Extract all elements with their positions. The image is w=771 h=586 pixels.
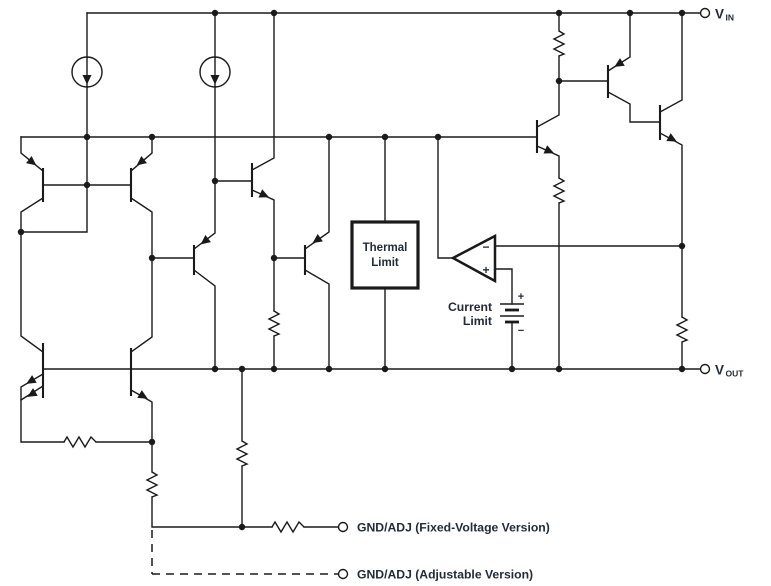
transistor-npn-feedback xyxy=(131,348,150,403)
junction-dot xyxy=(326,366,332,372)
junction-dot xyxy=(556,78,562,84)
gnd-fixed-wire xyxy=(152,497,272,527)
junction-dot xyxy=(271,10,277,16)
gnd-fixed-terminal: GND/ADJ (Fixed-Voltage Version) xyxy=(339,521,550,535)
terminal-circle xyxy=(339,570,348,579)
q6-collector-wire xyxy=(305,270,329,369)
q2-emitter-wire xyxy=(131,137,152,171)
vin-label-subscript: IN xyxy=(726,13,735,23)
junction-dot xyxy=(149,255,155,261)
junction-dot xyxy=(271,255,277,261)
resistor-feedback xyxy=(64,437,96,447)
q1-collector-wire xyxy=(21,198,43,352)
junction-dot xyxy=(18,229,24,235)
current-limit-label-line1: Current xyxy=(448,300,492,314)
junction-dot xyxy=(271,366,277,372)
emitter-arrow xyxy=(666,133,679,145)
transistor-pnp-mirror-right xyxy=(131,156,147,202)
q8-collector-wire xyxy=(660,13,682,112)
resistor-divider-lower xyxy=(147,472,157,497)
junction-dot xyxy=(212,366,218,372)
junction-dot xyxy=(556,10,562,16)
resistor-q4-emitter xyxy=(554,178,564,203)
junction-dot xyxy=(239,524,245,530)
vin-label: V xyxy=(715,7,724,22)
q3-emitter-wire xyxy=(252,190,274,311)
resistor-gnd-series xyxy=(272,522,304,532)
gnd-adjustable-dashed-wire xyxy=(152,530,338,574)
junction-dot xyxy=(212,178,218,184)
terminal-circle xyxy=(701,365,710,374)
schematic-figure: Thermal Limit − + + − Current Limit xyxy=(0,0,771,586)
transistor-pnp-left-follower xyxy=(194,235,211,275)
current-limit-comparator: − + xyxy=(453,236,495,281)
current-limit-label-line2: Limit xyxy=(463,314,492,328)
junction-dot xyxy=(509,366,515,372)
thermal-limit-label-line1: Thermal xyxy=(363,242,408,254)
junction-dot xyxy=(556,366,562,372)
emitter-arrow-1 xyxy=(24,375,37,388)
resistor-driver-base xyxy=(554,31,564,56)
comparator-inverting-label: − xyxy=(482,240,489,254)
junction-dot xyxy=(627,10,633,16)
regulator-internal-schematic: Thermal Limit − + + − Current Limit xyxy=(0,0,771,586)
junction-dot xyxy=(149,439,155,445)
terminal-circle xyxy=(339,523,348,532)
junction-dot xyxy=(239,366,245,372)
current-source1-branch xyxy=(21,13,87,232)
comparator-output-wire xyxy=(438,137,453,258)
q3-collector-wire xyxy=(252,13,274,170)
junction-dot xyxy=(679,366,685,372)
battery-positive-label: + xyxy=(518,291,524,303)
q7-collector-wire xyxy=(608,92,660,122)
current-source-arrow-down xyxy=(211,75,220,85)
junction-dot xyxy=(382,366,388,372)
current-source-arrow-down xyxy=(83,75,92,85)
junction-dot xyxy=(382,134,388,140)
gnd-adjustable-label: GND/ADJ (Adjustable Version) xyxy=(357,568,533,582)
comparator-noninverting-label: + xyxy=(482,263,489,277)
q4-collector-wire-lower xyxy=(537,56,559,127)
transistor-pnp-right-follower xyxy=(305,234,323,275)
transistor-npn-dual-emitter xyxy=(24,343,43,401)
battery-negative-label: − xyxy=(518,325,524,337)
junction-dot xyxy=(326,134,332,140)
junction-dot xyxy=(84,182,90,188)
terminal-circle xyxy=(701,9,710,18)
vin-terminal: V IN xyxy=(701,7,735,23)
emitter-arrow xyxy=(612,58,625,71)
resistor-divider-upper xyxy=(237,441,247,466)
q6-emitter-wire xyxy=(305,137,329,249)
q8-emitter-wire xyxy=(660,133,682,317)
q1-emitter-wire xyxy=(21,137,43,171)
thermal-limit-label-line2: Limit xyxy=(371,257,399,269)
junction-dot xyxy=(679,10,685,16)
resistor-q3-emitter xyxy=(269,311,279,336)
junction-dot xyxy=(212,10,218,16)
emitter-arrow xyxy=(137,390,150,403)
thermal-limit-box xyxy=(352,222,418,288)
junction-dot xyxy=(84,134,90,140)
current-source2-branch xyxy=(194,13,215,249)
gnd-fixed-label: GND/ADJ (Fixed-Voltage Version) xyxy=(357,521,550,535)
gnd-adjustable-terminal: GND/ADJ (Adjustable Version) xyxy=(339,568,534,582)
vout-label-subscript: OUT xyxy=(726,369,745,379)
current-limit-caption: Current Limit xyxy=(448,300,492,328)
thermal-limit-block: Thermal Limit xyxy=(352,222,418,288)
junction-dot xyxy=(679,243,685,249)
emitter-arrow xyxy=(259,189,271,201)
q2-collector-wire xyxy=(131,198,152,352)
vout-terminal: V OUT xyxy=(701,363,745,379)
emitter-arrow xyxy=(544,145,556,157)
comparator-noninverting-wire xyxy=(495,269,512,304)
q5-collector-wire xyxy=(194,270,215,369)
junction-dot xyxy=(435,134,441,140)
resistor-current-sense xyxy=(677,317,687,342)
vout-label: V xyxy=(715,363,724,378)
junction-dot xyxy=(149,134,155,140)
transistor-pnp-mirror-left xyxy=(26,156,43,202)
transistor-pnp-driver xyxy=(608,58,625,98)
wire-network xyxy=(21,13,700,574)
